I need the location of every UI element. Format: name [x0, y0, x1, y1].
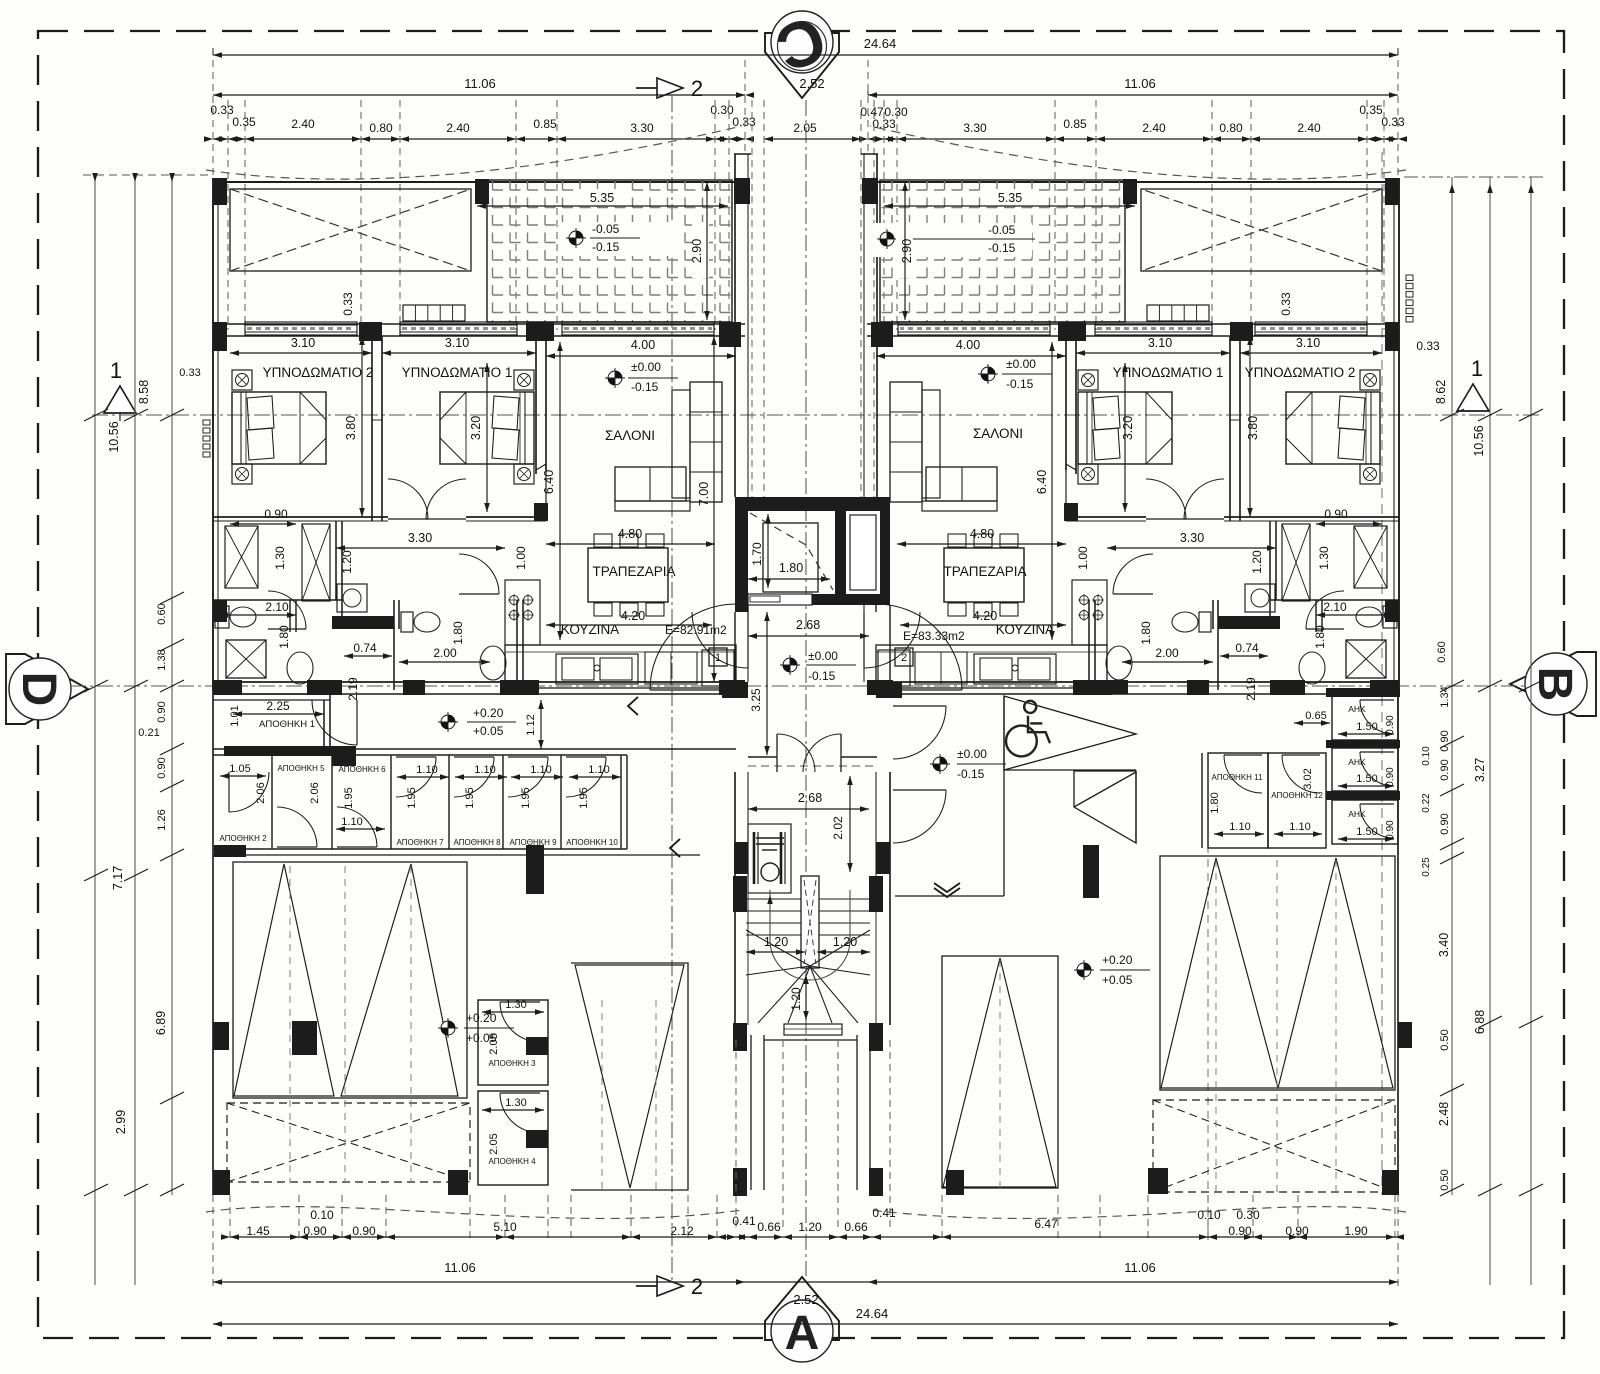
svg-text:4.80: 4.80: [970, 527, 994, 541]
svg-text:-0.15: -0.15: [957, 767, 985, 781]
svg-text:ΑΠΟΘΗΚΗ 2: ΑΠΟΘΗΚΗ 2: [219, 834, 267, 843]
svg-text:0.90: 0.90: [1385, 820, 1396, 840]
svg-text:1.00: 1.00: [514, 546, 528, 570]
svg-text:0.80: 0.80: [369, 121, 393, 135]
svg-text:ΑΠΟΘΗΚΗ 12: ΑΠΟΘΗΚΗ 12: [1271, 791, 1323, 800]
svg-text:2.68: 2.68: [796, 618, 820, 632]
svg-text:ΚΟΥΖΙΝΑ: ΚΟΥΖΙΝΑ: [561, 622, 619, 637]
svg-text:ΑΗΚ: ΑΗΚ: [1348, 757, 1366, 767]
svg-text:0.85: 0.85: [1063, 117, 1087, 131]
svg-text:11.06: 11.06: [444, 1260, 476, 1275]
svg-text:ΑΠΟΘΗΚΗ 4: ΑΠΟΘΗΚΗ 4: [488, 1157, 536, 1166]
svg-text:1.20: 1.20: [789, 987, 803, 1011]
svg-text:6.88: 6.88: [1473, 1010, 1487, 1034]
svg-text:1.50: 1.50: [1356, 826, 1377, 838]
svg-text:1.00: 1.00: [1076, 546, 1090, 570]
svg-text:1.20: 1.20: [798, 1220, 822, 1234]
svg-text:+0.05: +0.05: [1102, 973, 1133, 987]
svg-text:0.74: 0.74: [353, 641, 377, 655]
svg-text:2.48: 2.48: [1437, 1102, 1451, 1126]
svg-text:0.90: 0.90: [1439, 813, 1451, 834]
svg-text:ΣΑΛΟΝΙ: ΣΑΛΟΝΙ: [605, 428, 655, 443]
svg-text:3.25: 3.25: [749, 688, 763, 712]
svg-text:0.41: 0.41: [872, 1206, 896, 1220]
svg-text:3.40: 3.40: [1437, 933, 1451, 957]
svg-text:±0.00: ±0.00: [631, 360, 661, 374]
svg-text:11.06: 11.06: [1124, 76, 1156, 91]
svg-text:7.17: 7.17: [111, 866, 125, 890]
svg-text:ΥΠΝΟΔΩΜΑΤΙΟ 1: ΥΠΝΟΔΩΜΑΤΙΟ 1: [402, 365, 513, 380]
svg-text:3.10: 3.10: [445, 336, 469, 350]
svg-text:ΣΑΛΟΝΙ: ΣΑΛΟΝΙ: [973, 426, 1023, 441]
svg-text:5.10: 5.10: [493, 1220, 517, 1234]
svg-text:1.12: 1.12: [525, 714, 537, 735]
svg-text:2.10: 2.10: [265, 600, 289, 614]
svg-text:±0.00: ±0.00: [1006, 357, 1036, 371]
svg-text:2.40: 2.40: [446, 121, 470, 135]
svg-text:2.19: 2.19: [346, 677, 360, 701]
svg-text:1.20: 1.20: [1250, 550, 1264, 574]
svg-text:-0.15: -0.15: [988, 241, 1016, 255]
svg-text:ΑΗΚ: ΑΗΚ: [1348, 704, 1366, 714]
svg-text:6.47: 6.47: [1034, 1217, 1058, 1231]
svg-text:1.20: 1.20: [764, 935, 788, 949]
svg-text:1.70: 1.70: [750, 542, 764, 566]
svg-text:2.25: 2.25: [266, 699, 290, 713]
svg-text:ΑΠΟΘΗΚΗ 6: ΑΠΟΘΗΚΗ 6: [338, 765, 386, 774]
svg-text:1.20: 1.20: [340, 550, 354, 574]
svg-text:2.12: 2.12: [670, 1224, 694, 1238]
svg-text:0.60: 0.60: [156, 603, 168, 624]
svg-text:±0.00: ±0.00: [957, 747, 987, 761]
svg-text:2.19: 2.19: [1244, 677, 1258, 701]
svg-text:1: 1: [715, 652, 721, 664]
svg-text:3.20: 3.20: [1121, 416, 1135, 440]
svg-text:1.20: 1.20: [833, 935, 857, 949]
svg-text:+0.20: +0.20: [473, 706, 504, 720]
svg-text:0.90: 0.90: [156, 757, 168, 778]
svg-text:2.52: 2.52: [793, 1292, 818, 1307]
svg-text:3.80: 3.80: [1246, 416, 1260, 440]
svg-text:1.30: 1.30: [273, 546, 287, 570]
svg-text:1.10: 1.10: [416, 764, 437, 776]
svg-text:2: 2: [691, 76, 703, 101]
svg-text:1.95: 1.95: [464, 787, 476, 808]
svg-text:0.25: 0.25: [1421, 857, 1432, 877]
svg-text:2.10: 2.10: [1323, 600, 1347, 614]
svg-text:0.66: 0.66: [844, 1220, 868, 1234]
svg-text:0.33: 0.33: [1416, 339, 1440, 353]
svg-text:0.10: 0.10: [310, 1208, 334, 1222]
svg-text:0.50: 0.50: [1439, 1169, 1451, 1190]
svg-text:0.85: 0.85: [533, 117, 557, 131]
svg-text:ΑΠΟΘΗΚΗ 7: ΑΠΟΘΗΚΗ 7: [396, 838, 444, 847]
svg-text:-0.15: -0.15: [808, 669, 836, 683]
svg-text:±0.00: ±0.00: [808, 649, 838, 663]
svg-text:-0.05: -0.05: [988, 223, 1016, 237]
svg-text:+0.20: +0.20: [1102, 953, 1133, 967]
svg-text:1.95: 1.95: [343, 787, 355, 808]
svg-text:3.30: 3.30: [630, 121, 654, 135]
svg-text:0.60: 0.60: [1436, 641, 1448, 662]
svg-text:1.95: 1.95: [578, 787, 590, 808]
svg-text:10.56: 10.56: [1472, 425, 1486, 456]
svg-text:0.80: 0.80: [1219, 121, 1243, 135]
svg-text:1.95: 1.95: [520, 787, 532, 808]
svg-text:1.80: 1.80: [779, 561, 803, 575]
svg-text:ΥΠΝΟΔΩΜΑΤΙΟ 2: ΥΠΝΟΔΩΜΑΤΙΟ 2: [1245, 365, 1356, 380]
svg-text:0.41: 0.41: [732, 1214, 756, 1228]
svg-text:3.27: 3.27: [1473, 758, 1487, 782]
svg-text:0.30: 0.30: [1236, 1208, 1260, 1222]
svg-text:3.10: 3.10: [1296, 336, 1320, 350]
svg-text:0.90: 0.90: [264, 507, 288, 521]
svg-text:1.30: 1.30: [1317, 546, 1331, 570]
svg-text:ΑΠΟΘΗΚΗ 11: ΑΠΟΘΗΚΗ 11: [1212, 773, 1264, 782]
svg-text:6.89: 6.89: [154, 1011, 168, 1035]
svg-text:1.90: 1.90: [1344, 1224, 1368, 1238]
svg-text:1.80: 1.80: [277, 625, 291, 649]
svg-text:3.30: 3.30: [963, 121, 987, 135]
svg-text:0.10: 0.10: [1197, 1208, 1221, 1222]
svg-text:3.02: 3.02: [1302, 768, 1314, 789]
svg-text:0.33: 0.33: [1381, 115, 1405, 129]
svg-text:2.52: 2.52: [799, 76, 824, 91]
svg-text:1.80: 1.80: [451, 621, 465, 645]
svg-text:2.00: 2.00: [433, 646, 457, 660]
svg-text:2.40: 2.40: [291, 117, 315, 131]
svg-text:ΑΠΟΘΗΚΗ 8: ΑΠΟΘΗΚΗ 8: [453, 838, 501, 847]
svg-text:3.10: 3.10: [291, 336, 315, 350]
svg-text:2.40: 2.40: [1297, 121, 1321, 135]
svg-text:11.06: 11.06: [464, 76, 496, 91]
svg-text:0.30: 0.30: [710, 103, 734, 117]
svg-text:1.10: 1.10: [341, 816, 362, 828]
svg-text:2.90: 2.90: [690, 239, 704, 263]
svg-text:1.30: 1.30: [505, 999, 526, 1011]
svg-text:1.80: 1.80: [1209, 792, 1221, 813]
svg-text:1.45: 1.45: [246, 1224, 270, 1238]
svg-text:2.05: 2.05: [793, 121, 817, 135]
svg-text:ΑΠΟΘΗΚΗ 10: ΑΠΟΘΗΚΗ 10: [566, 838, 618, 847]
svg-text:ΚΟΥΖΙΝΑ: ΚΟΥΖΙΝΑ: [996, 622, 1054, 637]
svg-text:1.30: 1.30: [505, 1097, 526, 1109]
svg-text:1.50: 1.50: [1356, 773, 1377, 785]
svg-text:0.90: 0.90: [1285, 1224, 1309, 1238]
svg-text:2.40: 2.40: [1142, 121, 1166, 135]
svg-text:0.10: 0.10: [1421, 746, 1432, 766]
svg-text:1: 1: [110, 358, 122, 383]
svg-text:2.90: 2.90: [900, 239, 914, 263]
svg-text:0.33: 0.33: [210, 103, 234, 117]
svg-text:0.33: 0.33: [1279, 292, 1293, 316]
svg-text:2: 2: [691, 1274, 703, 1299]
svg-text:ΑΠΟΘΗΚΗ 3: ΑΠΟΘΗΚΗ 3: [488, 1059, 536, 1068]
svg-text:6.40: 6.40: [1035, 470, 1049, 494]
svg-text:-0.15: -0.15: [631, 380, 659, 394]
svg-text:+0.05: +0.05: [473, 724, 504, 738]
svg-text:0.66: 0.66: [757, 1220, 781, 1234]
svg-text:4.80: 4.80: [618, 527, 642, 541]
svg-text:0.74: 0.74: [1235, 641, 1259, 655]
svg-text:ΑΠΟΘΗΚΗ 1: ΑΠΟΘΗΚΗ 1: [259, 719, 315, 730]
svg-text:8.58: 8.58: [137, 380, 151, 404]
svg-text:24.64: 24.64: [856, 1306, 889, 1321]
svg-text:1.80: 1.80: [1313, 625, 1327, 649]
svg-text:-0.15: -0.15: [1006, 377, 1034, 391]
svg-text:ΑΠΟΘΗΚΗ 9: ΑΠΟΘΗΚΗ 9: [509, 838, 557, 847]
svg-text:1.10: 1.10: [474, 764, 495, 776]
svg-text:2.06: 2.06: [309, 782, 321, 803]
svg-text:4.20: 4.20: [973, 609, 997, 623]
svg-text:0.90: 0.90: [1385, 715, 1396, 735]
svg-text:6.40: 6.40: [542, 470, 556, 494]
svg-text:2.05: 2.05: [488, 1133, 500, 1154]
svg-text:24.64: 24.64: [864, 36, 897, 51]
svg-text:0.90: 0.90: [303, 1224, 327, 1238]
svg-text:1.38: 1.38: [156, 649, 168, 670]
svg-text:-0.05: -0.05: [592, 222, 620, 236]
svg-text:2.68: 2.68: [798, 791, 822, 805]
svg-text:1.10: 1.10: [1289, 821, 1310, 833]
svg-text:1.80: 1.80: [1139, 621, 1153, 645]
svg-text:0.90: 0.90: [156, 701, 168, 722]
svg-text:2.00: 2.00: [1155, 646, 1179, 660]
svg-text:11.06: 11.06: [1124, 1260, 1156, 1275]
svg-text:5.35: 5.35: [590, 191, 614, 205]
svg-text:2.02: 2.02: [831, 816, 845, 840]
svg-text:1.50: 1.50: [1356, 721, 1377, 733]
svg-text:2.99: 2.99: [114, 1110, 128, 1134]
svg-text:0.90: 0.90: [352, 1224, 376, 1238]
svg-text:0.90: 0.90: [1439, 759, 1451, 780]
svg-text:2: 2: [901, 652, 907, 664]
svg-text:7.00: 7.00: [697, 482, 711, 506]
svg-text:1.95: 1.95: [406, 787, 418, 808]
svg-text:3.30: 3.30: [1180, 531, 1204, 545]
svg-text:A: A: [785, 1307, 820, 1360]
svg-text:0.33: 0.33: [179, 367, 200, 379]
svg-text:0.50: 0.50: [1439, 1029, 1451, 1050]
svg-text:ΤΡΑΠΕΖΑΡΙΑ: ΤΡΑΠΕΖΑΡΙΑ: [943, 564, 1026, 579]
svg-text:0.35: 0.35: [232, 115, 256, 129]
svg-text:1.10: 1.10: [1229, 821, 1250, 833]
svg-text:8.62: 8.62: [1434, 380, 1448, 404]
svg-text:-0.15: -0.15: [592, 240, 620, 254]
svg-text:0.33: 0.33: [341, 292, 355, 316]
svg-text:0.90: 0.90: [1385, 767, 1396, 787]
svg-text:ΑΗΚ: ΑΗΚ: [1348, 809, 1366, 819]
svg-text:3.10: 3.10: [1148, 336, 1172, 350]
svg-text:0.65: 0.65: [1305, 710, 1326, 722]
svg-text:2.05: 2.05: [488, 1033, 500, 1054]
svg-text:0.90: 0.90: [1228, 1224, 1252, 1238]
svg-text:ΥΠΝΟΔΩΜΑΤΙΟ 2: ΥΠΝΟΔΩΜΑΤΙΟ 2: [263, 365, 374, 380]
svg-text:4.00: 4.00: [631, 338, 655, 352]
svg-text:3.30: 3.30: [408, 531, 432, 545]
svg-text:1: 1: [1471, 356, 1483, 381]
svg-text:ΥΠΝΟΔΩΜΑΤΙΟ 1: ΥΠΝΟΔΩΜΑΤΙΟ 1: [1113, 365, 1224, 380]
svg-text:4.20: 4.20: [621, 609, 645, 623]
svg-text:0.35: 0.35: [1359, 103, 1383, 117]
svg-text:3.20: 3.20: [469, 416, 483, 440]
svg-text:4.00: 4.00: [956, 338, 980, 352]
svg-text:0.90: 0.90: [1324, 507, 1348, 521]
svg-text:1.10: 1.10: [530, 764, 551, 776]
svg-text:10.56: 10.56: [107, 421, 121, 452]
svg-text:2.06: 2.06: [255, 782, 267, 803]
svg-text:1.05: 1.05: [229, 763, 250, 775]
svg-text:0.21: 0.21: [138, 727, 159, 739]
svg-text:0.22: 0.22: [1421, 793, 1432, 813]
svg-text:+0.20: +0.20: [466, 1011, 497, 1025]
svg-text:E=83.33m2: E=83.33m2: [903, 629, 965, 643]
svg-text:1.10: 1.10: [588, 764, 609, 776]
svg-text:5.35: 5.35: [998, 191, 1022, 205]
svg-text:ΑΠΟΘΗΚΗ 5: ΑΠΟΘΗΚΗ 5: [277, 764, 325, 773]
svg-text:0.90: 0.90: [1439, 730, 1451, 751]
svg-text:1.01: 1.01: [229, 705, 241, 726]
svg-text:D: D: [12, 672, 65, 707]
svg-text:1.26: 1.26: [156, 809, 168, 830]
svg-text:ΤΡΑΠΕΖΑΡΙΑ: ΤΡΑΠΕΖΑΡΙΑ: [592, 564, 675, 579]
svg-text:3.80: 3.80: [344, 416, 358, 440]
